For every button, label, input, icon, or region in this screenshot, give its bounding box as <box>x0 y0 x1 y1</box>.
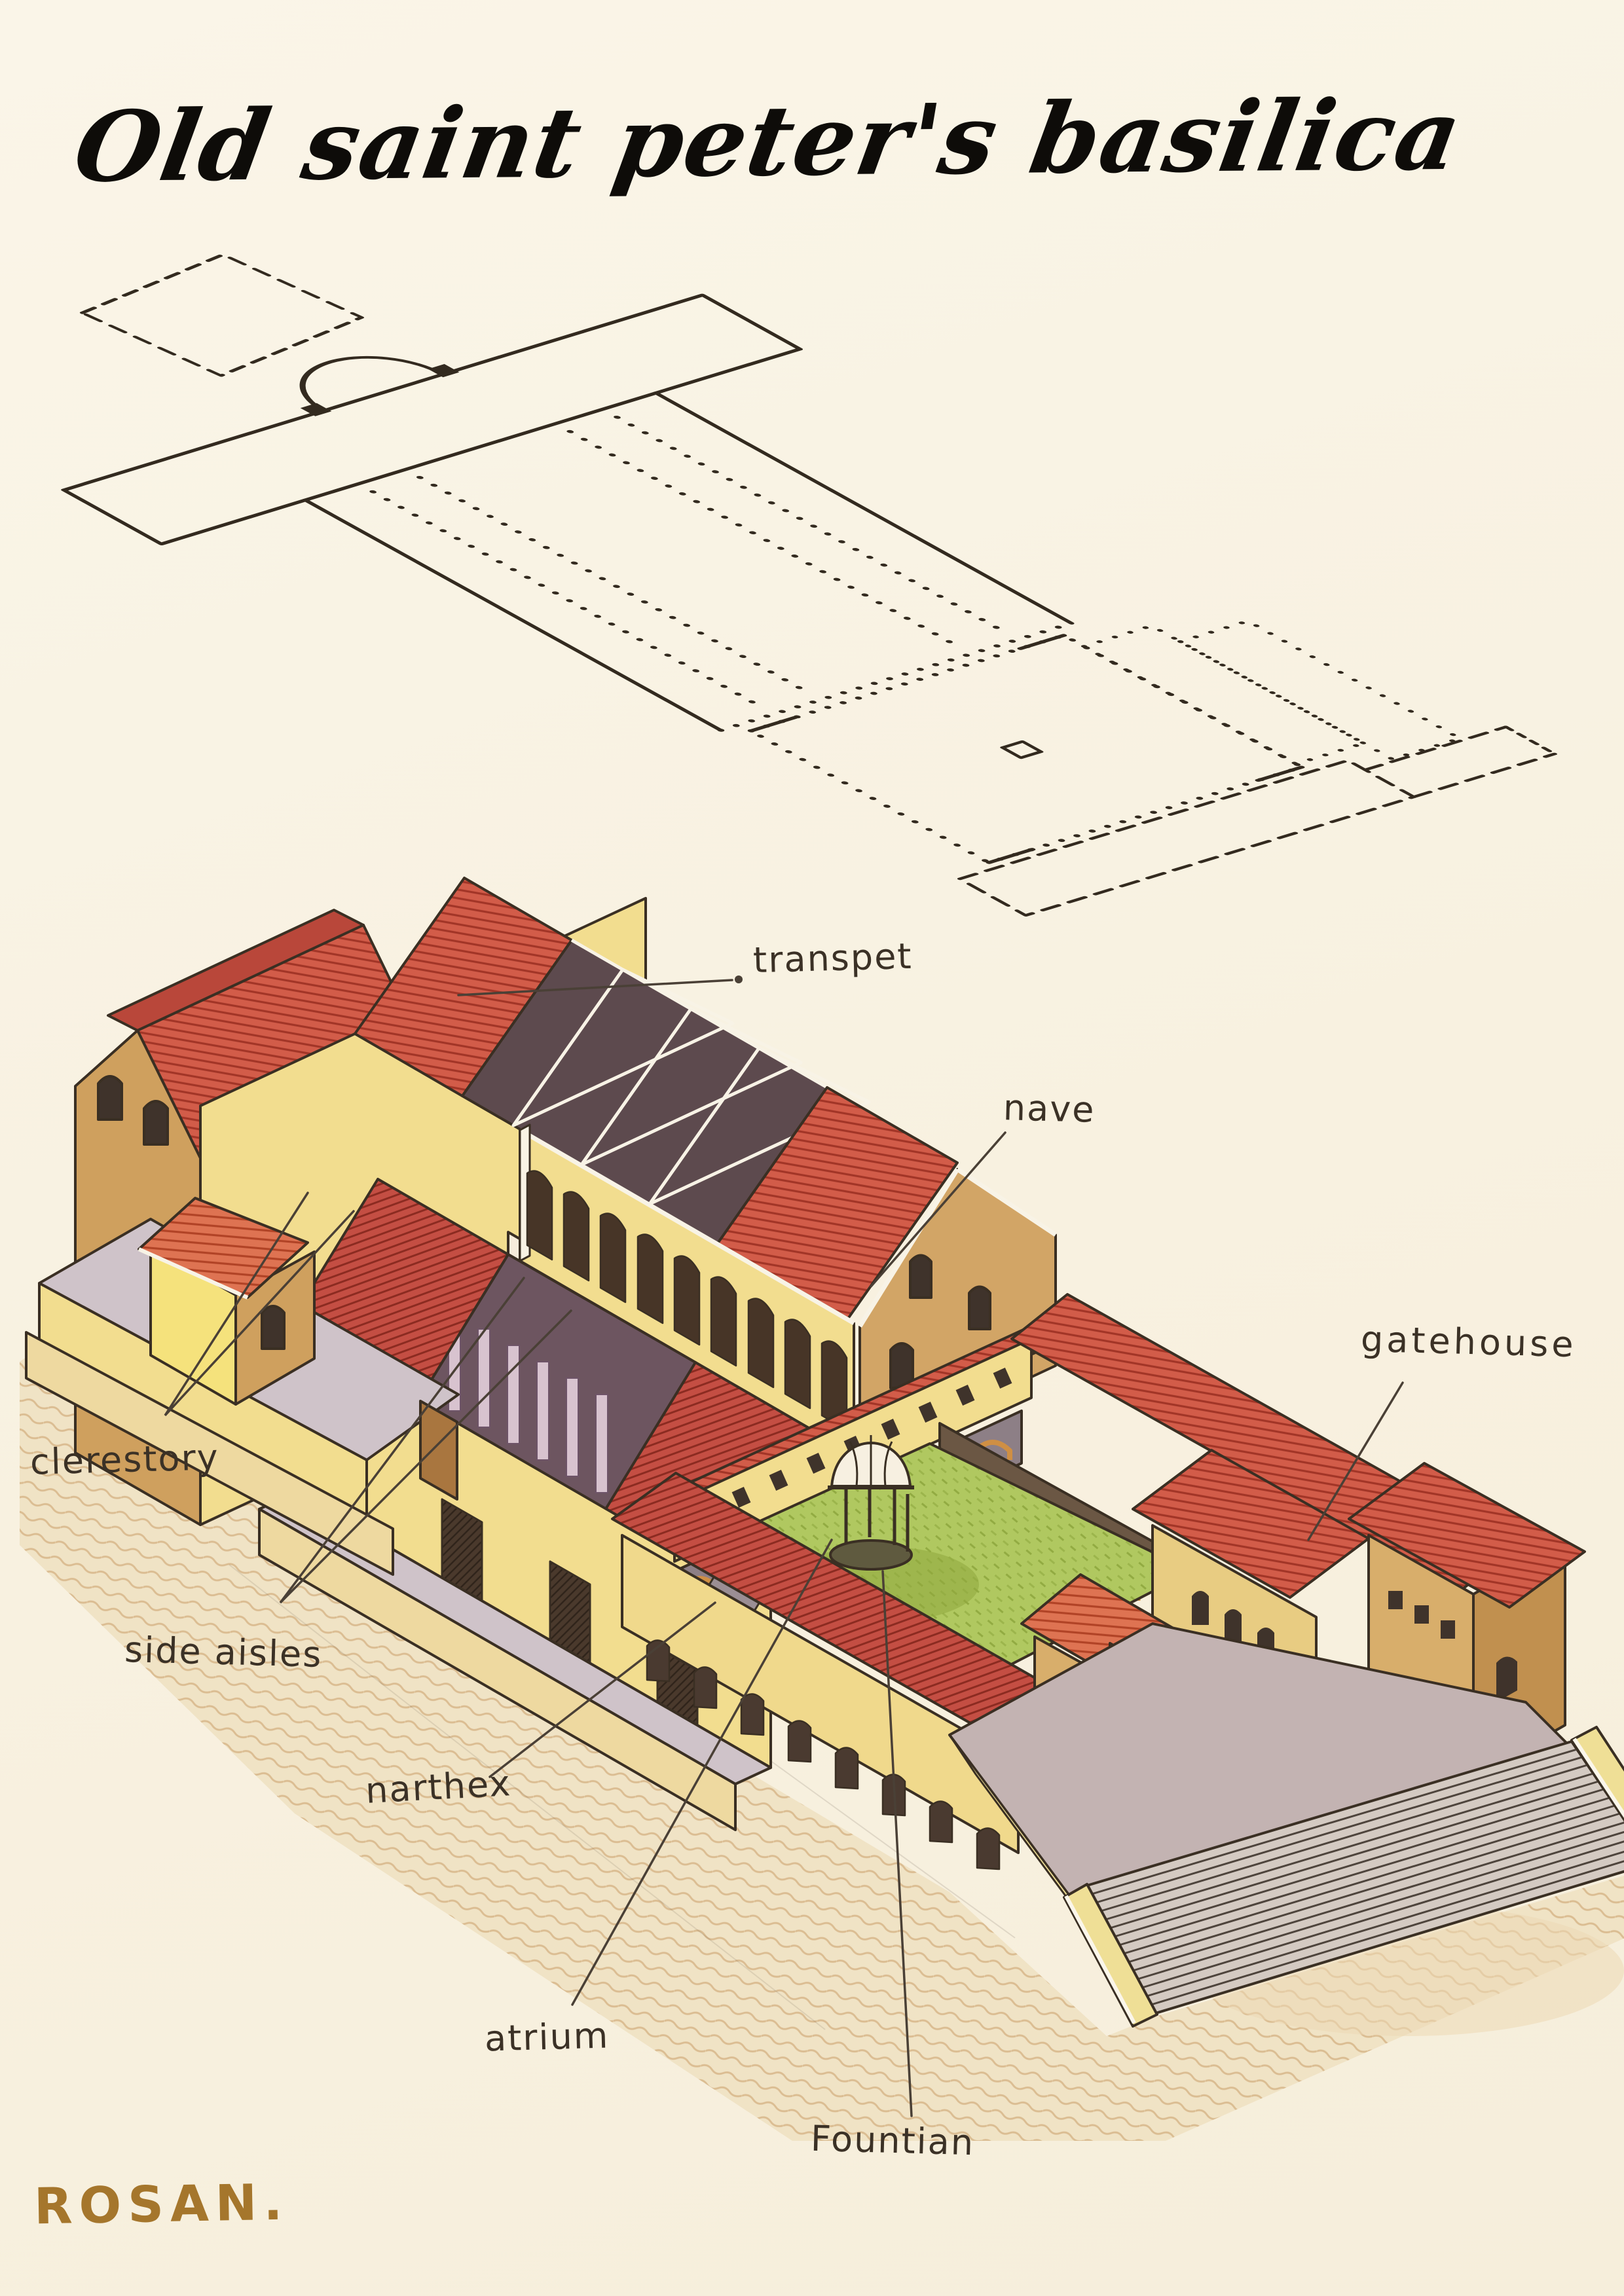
plan-gatehouse <box>960 718 1555 916</box>
plan-transept <box>64 295 800 544</box>
artist-signature: ROSAN. <box>33 2173 289 2236</box>
label-atrium: atrium <box>484 2015 610 2060</box>
label-clerestory: clerestory <box>29 1436 219 1483</box>
label-narthex: narthex <box>365 1762 513 1812</box>
isometric-drawing <box>20 878 1624 2141</box>
page-title: Old saint peter's basilica <box>67 78 1470 204</box>
sketch-canvas <box>0 0 1624 2296</box>
plan-mausoleum <box>83 255 362 376</box>
label-side-aisles: side aisles <box>124 1629 323 1675</box>
label-gatehouse: gatehouse <box>1360 1319 1577 1366</box>
plan-fountain <box>1003 742 1041 758</box>
plan-nave <box>305 393 1071 730</box>
floor-plan <box>0 170 1555 953</box>
label-fountain: Fountian <box>810 2118 975 2164</box>
label-transept: transpet <box>752 936 913 981</box>
label-nave: nave <box>1003 1087 1096 1131</box>
